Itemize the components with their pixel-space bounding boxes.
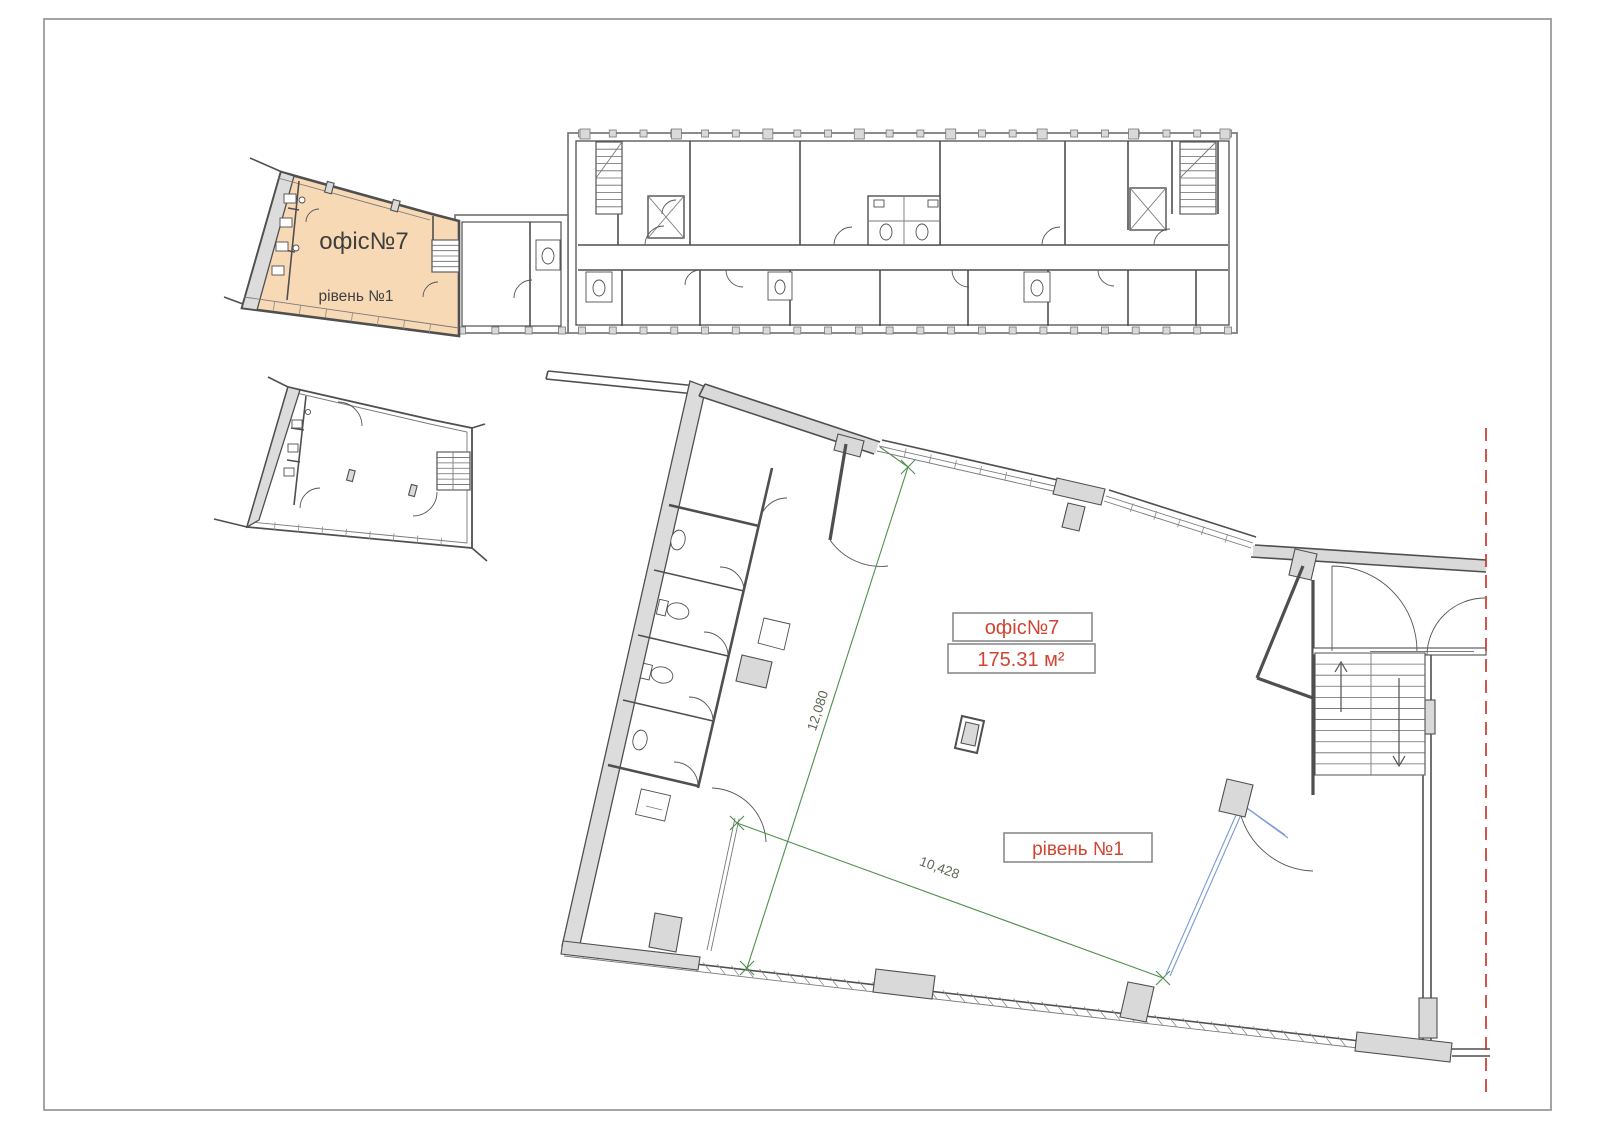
column [1419,998,1437,1038]
stairwell-right [1180,142,1216,214]
overview-level-label: рівень №1 [319,288,394,305]
overview-office-label: офіс№7 [319,228,409,255]
detail-office-label-box: офіс№7 [953,613,1092,641]
drawing-sheet: офіс№7 рівень №1 [0,0,1600,1131]
stairwell-left [596,142,622,214]
elevator-right [1130,188,1166,230]
detail-level-label-box: рівень №1 [1004,833,1152,862]
column [649,913,682,952]
elevator-left [648,196,684,238]
wc-cluster-center [868,196,940,245]
detail-area-label-box: 175.31 м² [948,644,1095,673]
detail-office-label: офіс№7 [985,617,1060,639]
floor-plan-drawing: офіс№7 рівень №1 [0,0,1600,1131]
detail-level-label: рівень №1 [1032,839,1124,860]
detail-stairs [1315,653,1425,775]
detail-area-label: 175.31 м² [977,649,1064,671]
